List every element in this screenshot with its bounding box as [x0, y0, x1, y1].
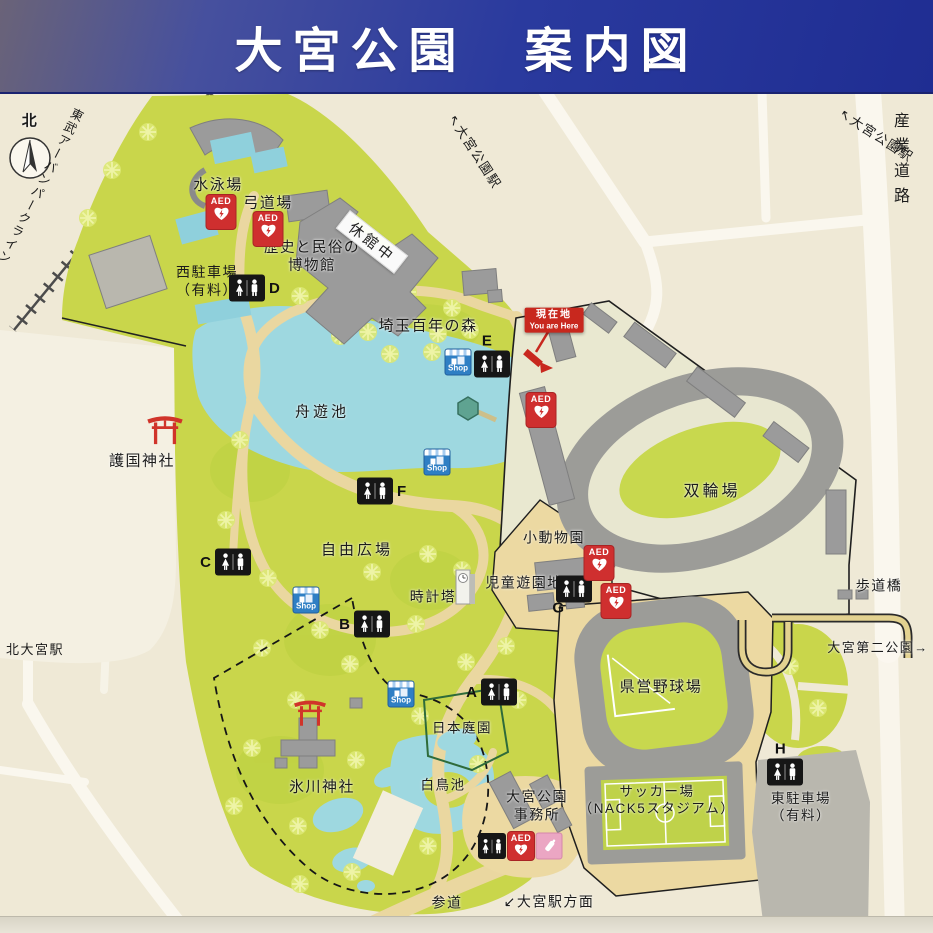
toilet-letter: E [482, 333, 492, 350]
label-centennial-forest: 埼玉百年の森 [378, 318, 477, 337]
toilet-icon: B [354, 611, 390, 638]
label-hikawa-shrine: 氷川神社 [289, 779, 355, 798]
toilet-letter: F [397, 483, 406, 500]
toilet-letter: H [775, 741, 786, 758]
toilet-letter: A [466, 684, 477, 701]
aed-icon: AED [507, 831, 535, 861]
toilet-icon: A [481, 679, 517, 706]
toilet-letter: B [339, 616, 350, 633]
label-soccer-stadium: サッカー場 （NACK5スタジアム） [579, 784, 736, 818]
aed-icon: AED [584, 545, 615, 581]
label-pedestrian-bridge: 歩道橋 [856, 577, 903, 595]
torii-icon [293, 699, 327, 728]
gokoku-shrine-grounds [0, 330, 176, 663]
label-japanese-garden: 日本庭園 [432, 721, 492, 738]
aed-icon: AED [206, 194, 237, 230]
label-clock-tower: 時計塔 [410, 588, 457, 606]
sangyo-road-label: 産業道路 [889, 112, 909, 212]
label-small-zoo: 小動物園 [523, 529, 585, 547]
station-kita-omiya-label: 北大宮駅 [6, 642, 64, 658]
label-swan-pond: 白鳥池 [421, 778, 466, 795]
label-velodrome: 双輪場 [683, 482, 740, 502]
label-to-omiya-station: ↙大宮駅方面 [504, 893, 595, 911]
nursing-room-icon [536, 833, 563, 860]
aed-icon: AED [253, 211, 284, 247]
label-sando: 参道 [432, 894, 463, 912]
label-swimming-pool: 水泳場 [193, 177, 243, 196]
toilet-icon: E [474, 351, 510, 378]
shop-icon: Shop [424, 449, 451, 476]
toilet-icon: H [767, 759, 803, 786]
label-baseball-stadium: 県営野球場 [620, 679, 703, 698]
label-gokoku-shrine: 護国神社 [109, 453, 175, 472]
toilet-icon: C [215, 549, 251, 576]
label-free-plaza: 自由広場 [321, 542, 393, 561]
toilet-icon [478, 833, 506, 859]
compass-north-label: 北 [22, 113, 39, 132]
page-title: 大宮公園 案内図 [234, 11, 698, 81]
label-park-office: 大宮公園 事務所 [506, 789, 568, 824]
shop-icon: Shop [445, 349, 472, 376]
label-children-playground: 児童遊園地 [485, 574, 563, 592]
aed-icon: AED [526, 392, 557, 428]
label-boat-pond: 舟遊池 [295, 404, 349, 423]
torii-icon [146, 414, 184, 446]
label-east-parking: 東駐車場 （有料） [771, 791, 831, 825]
title-banner: 大宮公園 案内図 [0, 0, 933, 94]
clock-tower [456, 570, 475, 604]
you-are-here-sign: 現在地 You are Here [525, 308, 584, 333]
toilet-letter: G [552, 600, 564, 617]
toilet-letter: C [200, 554, 211, 571]
sign-frame [0, 916, 933, 933]
toilet-icon: D [229, 275, 265, 302]
shop-icon: Shop [293, 587, 320, 614]
park-map-sign: 大宮公園 案内図 [0, 0, 933, 933]
label-daini-park: 大宮第二公園→ [827, 640, 929, 656]
toilet-letter: D [269, 280, 280, 297]
toilet-icon: F [357, 478, 393, 505]
shop-icon: Shop [388, 681, 415, 708]
aed-icon: AED [601, 583, 632, 619]
